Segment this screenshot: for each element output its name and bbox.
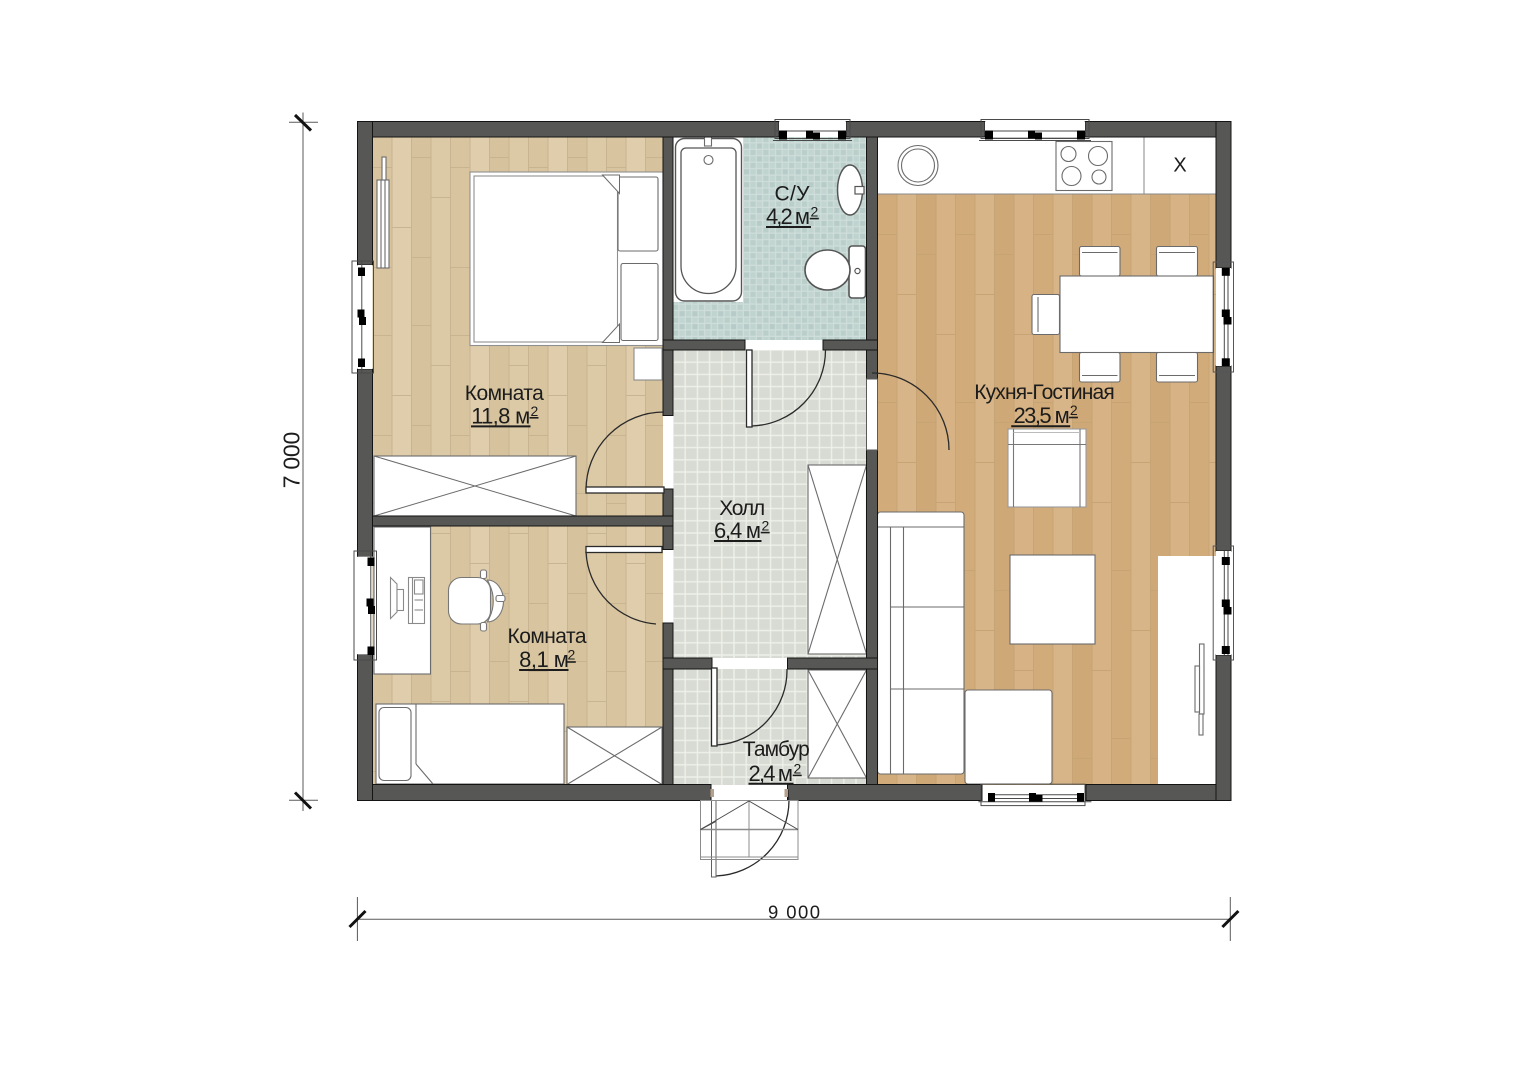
svg-text:7 000: 7 000 xyxy=(279,432,305,489)
svg-text:4,2 м: 4,2 м xyxy=(766,204,810,229)
svg-text:9 000: 9 000 xyxy=(768,902,820,923)
svg-text:2: 2 xyxy=(1070,402,1078,418)
svg-text:2: 2 xyxy=(811,204,819,220)
svg-text:2: 2 xyxy=(531,403,539,419)
svg-text:11,8 м: 11,8 м xyxy=(471,404,530,429)
svg-text:X: X xyxy=(1173,155,1186,177)
svg-text:Комната: Комната xyxy=(508,625,587,648)
svg-text:8,1 м: 8,1 м xyxy=(519,647,569,672)
svg-text:Холл: Холл xyxy=(719,497,765,520)
svg-text:С/У: С/У xyxy=(775,182,811,205)
svg-text:23,5 м: 23,5 м xyxy=(1013,403,1069,428)
svg-text:Тамбур: Тамбур xyxy=(743,738,810,761)
svg-text:6,4 м: 6,4 м xyxy=(714,518,761,543)
svg-text:2: 2 xyxy=(794,760,802,776)
svg-text:Комната: Комната xyxy=(465,382,544,405)
svg-text:2: 2 xyxy=(762,518,770,534)
svg-text:2: 2 xyxy=(568,647,576,663)
svg-text:Кухня-Гостиная: Кухня-Гостиная xyxy=(974,381,1115,404)
svg-text:2,4 м: 2,4 м xyxy=(749,761,794,786)
